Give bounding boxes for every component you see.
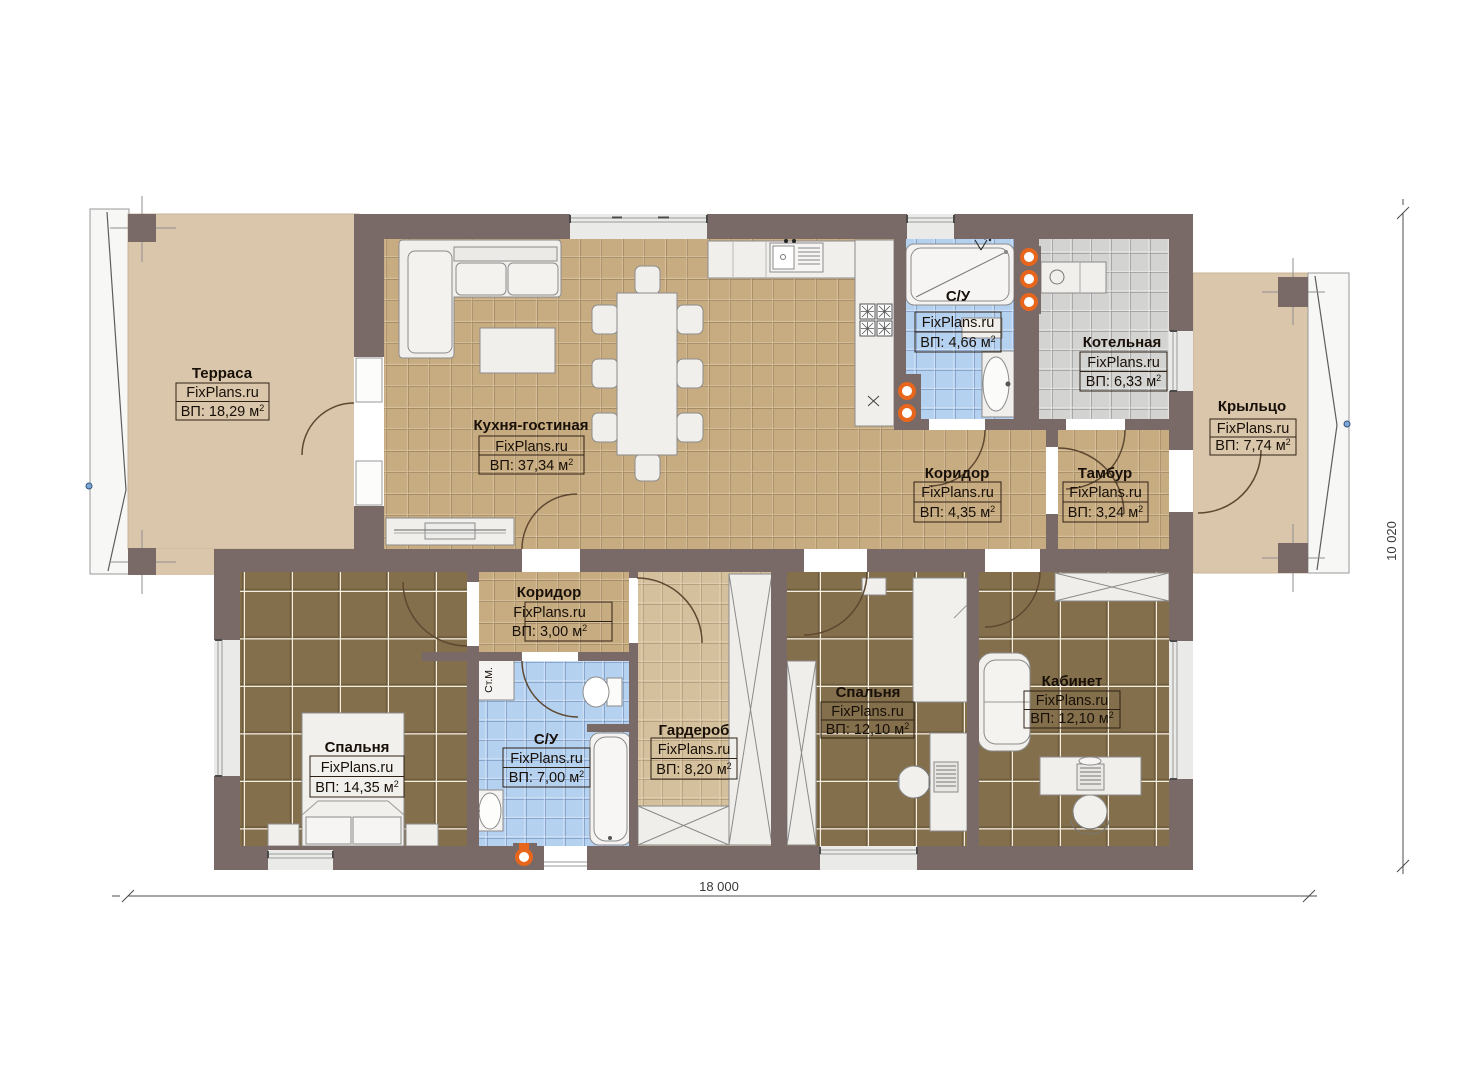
svg-text:FixPlans.ru: FixPlans.ru: [513, 605, 586, 621]
svg-text:FixPlans.ru: FixPlans.ru: [1069, 485, 1142, 501]
svg-text:FixPlans.ru: FixPlans.ru: [922, 315, 995, 331]
svg-text:Крыльцо: Крыльцо: [1218, 398, 1286, 415]
svg-text:ВП: 14,35 м2: ВП: 14,35 м2: [315, 779, 398, 796]
svg-text:Кухня-гостиная: Кухня-гостиная: [474, 417, 589, 434]
svg-text:Котельная: Котельная: [1083, 334, 1162, 351]
svg-text:ВП: 3,00 м2: ВП: 3,00 м2: [512, 623, 587, 640]
svg-text:Спальня: Спальня: [836, 684, 901, 701]
svg-text:ВП: 8,20 м2: ВП: 8,20 м2: [656, 761, 731, 778]
svg-text:ВП: 4,66 м2: ВП: 4,66 м2: [920, 334, 995, 351]
svg-text:Спальня: Спальня: [325, 739, 390, 756]
svg-text:ВП: 3,24 м2: ВП: 3,24 м2: [1068, 504, 1143, 521]
svg-text:Ст.М.: Ст.М.: [483, 667, 495, 693]
svg-text:ВП: 7,00 м2: ВП: 7,00 м2: [509, 769, 584, 786]
svg-text:Коридор: Коридор: [925, 465, 990, 482]
svg-text:18 000: 18 000: [699, 879, 739, 894]
svg-text:FixPlans.ru: FixPlans.ru: [1217, 421, 1290, 437]
svg-text:FixPlans.ru: FixPlans.ru: [831, 704, 904, 720]
svg-text:ВП: 18,29 м2: ВП: 18,29 м2: [181, 403, 264, 420]
svg-text:ВП: 12,10 м2: ВП: 12,10 м2: [1030, 710, 1113, 727]
svg-text:FixPlans.ru: FixPlans.ru: [495, 439, 568, 455]
svg-text:С/У: С/У: [946, 288, 971, 305]
svg-text:FixPlans.ru: FixPlans.ru: [658, 742, 731, 758]
svg-text:ВП: 6,33 м2: ВП: 6,33 м2: [1086, 373, 1161, 390]
svg-text:Коридор: Коридор: [517, 584, 582, 601]
svg-text:Терраса: Терраса: [192, 365, 253, 382]
svg-text:FixPlans.ru: FixPlans.ru: [1036, 693, 1109, 709]
svg-text:Тамбур: Тамбур: [1078, 465, 1132, 482]
svg-text:ВП: 12,10 м2: ВП: 12,10 м2: [826, 721, 909, 738]
svg-text:Гардероб: Гардероб: [659, 722, 730, 739]
svg-text:Кабинет: Кабинет: [1042, 673, 1103, 690]
svg-text:FixPlans.ru: FixPlans.ru: [186, 385, 259, 401]
svg-text:ВП: 37,34 м2: ВП: 37,34 м2: [490, 457, 573, 474]
svg-text:FixPlans.ru: FixPlans.ru: [1087, 355, 1160, 371]
svg-text:ВП: 4,35 м2: ВП: 4,35 м2: [920, 504, 995, 521]
svg-text:FixPlans.ru: FixPlans.ru: [510, 751, 583, 767]
svg-text:ВП: 7,74 м2: ВП: 7,74 м2: [1215, 437, 1290, 454]
svg-text:С/У: С/У: [534, 731, 559, 748]
svg-text:10 020: 10 020: [1384, 521, 1399, 561]
svg-text:FixPlans.ru: FixPlans.ru: [921, 485, 994, 501]
svg-text:FixPlans.ru: FixPlans.ru: [321, 760, 394, 776]
